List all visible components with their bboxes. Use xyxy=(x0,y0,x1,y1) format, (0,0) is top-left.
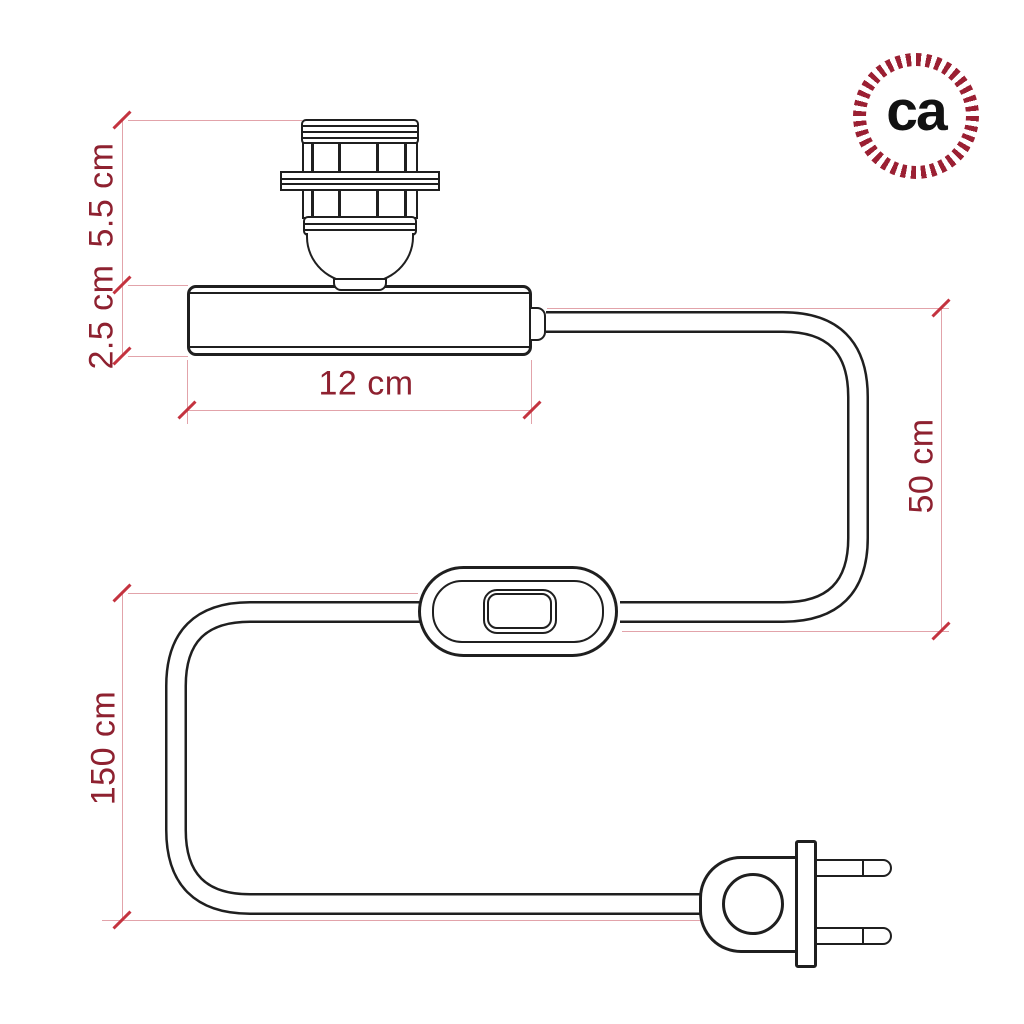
plug-face-plate xyxy=(795,840,817,968)
thread-ridge xyxy=(303,131,417,133)
label-socket-height: 5.5 cm xyxy=(83,142,122,247)
creative-cables-rope-logo: ca xyxy=(853,53,979,179)
logo-text: ca xyxy=(886,83,945,150)
ext-line-base-top xyxy=(128,285,188,286)
plug-body xyxy=(699,856,799,953)
switch-rocker-inner xyxy=(487,593,552,629)
logo-inner-circle: ca xyxy=(866,66,966,166)
ext-line-switch-left xyxy=(128,593,418,594)
thread-ridge xyxy=(305,223,415,225)
ext-line-plug xyxy=(102,920,700,921)
ext-line-cable-exit xyxy=(547,308,949,309)
dim-line-socket-base xyxy=(122,120,123,356)
label-base-height: 2.5 cm xyxy=(83,264,122,369)
label-base-to-switch-cable: 50 cm xyxy=(903,418,942,513)
base-inner-top-line xyxy=(190,292,529,294)
disc-line xyxy=(282,183,438,185)
socket-foot xyxy=(333,278,387,291)
plug-cord-grip-circle xyxy=(722,873,784,935)
lamp-base-cylinder xyxy=(187,285,532,356)
inline-switch-body xyxy=(418,566,618,657)
plug-pin-top xyxy=(814,859,892,877)
cable-gland xyxy=(529,307,546,341)
thread-ridge xyxy=(303,137,417,139)
ext-line-base-right xyxy=(531,360,532,424)
plug-pin-bottom xyxy=(814,927,892,945)
ext-line-base-left xyxy=(187,360,188,424)
label-base-width: 12 cm xyxy=(318,365,413,404)
thread-ridge xyxy=(305,229,415,231)
pin-tip-line xyxy=(862,929,864,943)
switch-rocker-button xyxy=(483,589,557,634)
dim-line-base-width xyxy=(187,410,532,411)
pin-tip-line xyxy=(862,861,864,875)
disc-line xyxy=(282,178,438,180)
label-switch-to-plug-cable: 150 cm xyxy=(85,691,124,806)
base-inner-bottom-line xyxy=(190,346,529,348)
thread-ridge xyxy=(303,125,417,127)
lamp-base-dimension-diagram: 5.5 cm 2.5 cm 12 cm 50 cm 150 cm ca xyxy=(0,0,1024,1024)
ext-line-switch-right xyxy=(622,631,949,632)
ext-line-socket-top xyxy=(128,120,302,121)
shade-ring-disc xyxy=(280,171,440,191)
ext-line-base-bottom xyxy=(128,356,188,357)
